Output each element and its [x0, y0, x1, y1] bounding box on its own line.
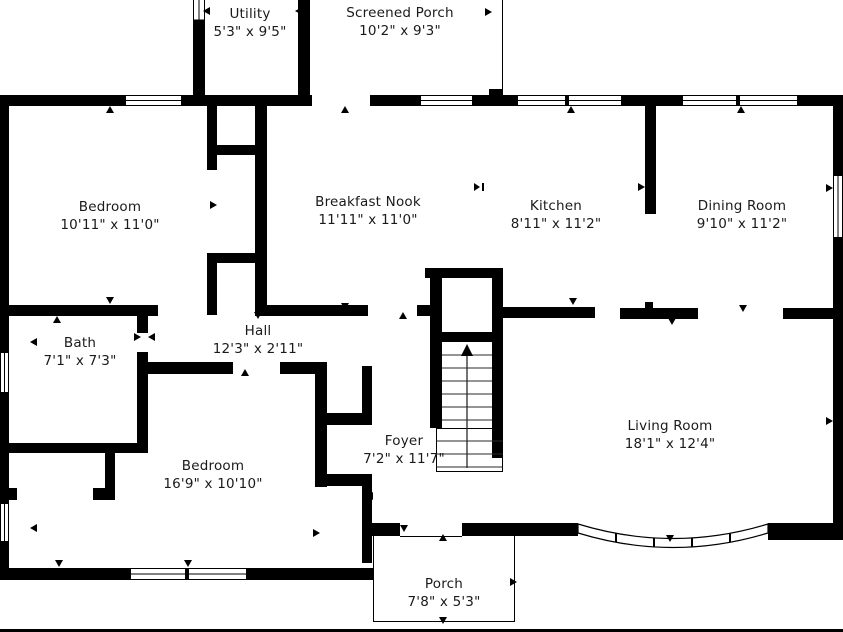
room-dimensions: 10'2" x 9'3": [346, 22, 454, 40]
room-name: Breakfast Nook: [315, 193, 421, 211]
room-dimensions: 12'3" x 2'11": [213, 340, 304, 358]
room-name: Bedroom: [60, 198, 159, 216]
room-name: Hall: [213, 322, 304, 340]
room-label-dining-room: Dining Room 9'10" x 11'2": [697, 197, 788, 233]
room-dimensions: 10'11" x 11'0": [60, 216, 159, 234]
room-label-kitchen: Kitchen 8'11" x 11'2": [511, 197, 602, 233]
room-label-bedroom-1: Bedroom 10'11" x 11'0": [60, 198, 159, 234]
room-label-utility: Utility 5'3" x 9'5": [214, 5, 287, 41]
room-dimensions: 7'2" x 11'7": [363, 450, 445, 468]
room-name: Bedroom: [163, 457, 262, 475]
room-label-hall: Hall 12'3" x 2'11": [213, 322, 304, 358]
room-name: Bath: [44, 334, 117, 352]
room-dimensions: 11'11" x 11'0": [315, 211, 421, 229]
room-name: Foyer: [363, 432, 445, 450]
room-label-foyer: Foyer 7'2" x 11'7": [363, 432, 445, 468]
room-name: Living Room: [625, 417, 716, 435]
room-dimensions: 16'9" x 10'10": [163, 475, 262, 493]
room-dimensions: 9'10" x 11'2": [697, 215, 788, 233]
room-label-bedroom-2: Bedroom 16'9" x 10'10": [163, 457, 262, 493]
room-name: Kitchen: [511, 197, 602, 215]
floor-plan-drawing: [0, 0, 843, 632]
windows: [1, 0, 843, 580]
room-name: Utility: [214, 5, 287, 23]
room-name: Screened Porch: [346, 4, 454, 22]
floor-plan: Utility 5'3" x 9'5" Screened Porch 10'2"…: [0, 0, 843, 632]
room-name: Porch: [408, 575, 481, 593]
room-dimensions: 7'8" x 5'3": [408, 593, 481, 611]
interior-walls: [0, 106, 833, 563]
room-dimensions: 18'1" x 12'4": [625, 435, 716, 453]
stairs-up-arrow: [461, 344, 473, 468]
room-label-living-room: Living Room 18'1" x 12'4": [625, 417, 716, 453]
room-dimensions: 5'3" x 9'5": [214, 23, 287, 41]
room-dimensions: 7'1" x 7'3": [44, 352, 117, 370]
room-label-screened-porch: Screened Porch 10'2" x 9'3": [346, 4, 454, 40]
room-label-bath: Bath 7'1" x 7'3": [44, 334, 117, 370]
room-name: Dining Room: [697, 197, 788, 215]
room-label-porch: Porch 7'8" x 5'3": [408, 575, 481, 611]
room-dimensions: 8'11" x 11'2": [511, 215, 602, 233]
room-label-breakfast-nook: Breakfast Nook 11'11" x 11'0": [315, 193, 421, 229]
